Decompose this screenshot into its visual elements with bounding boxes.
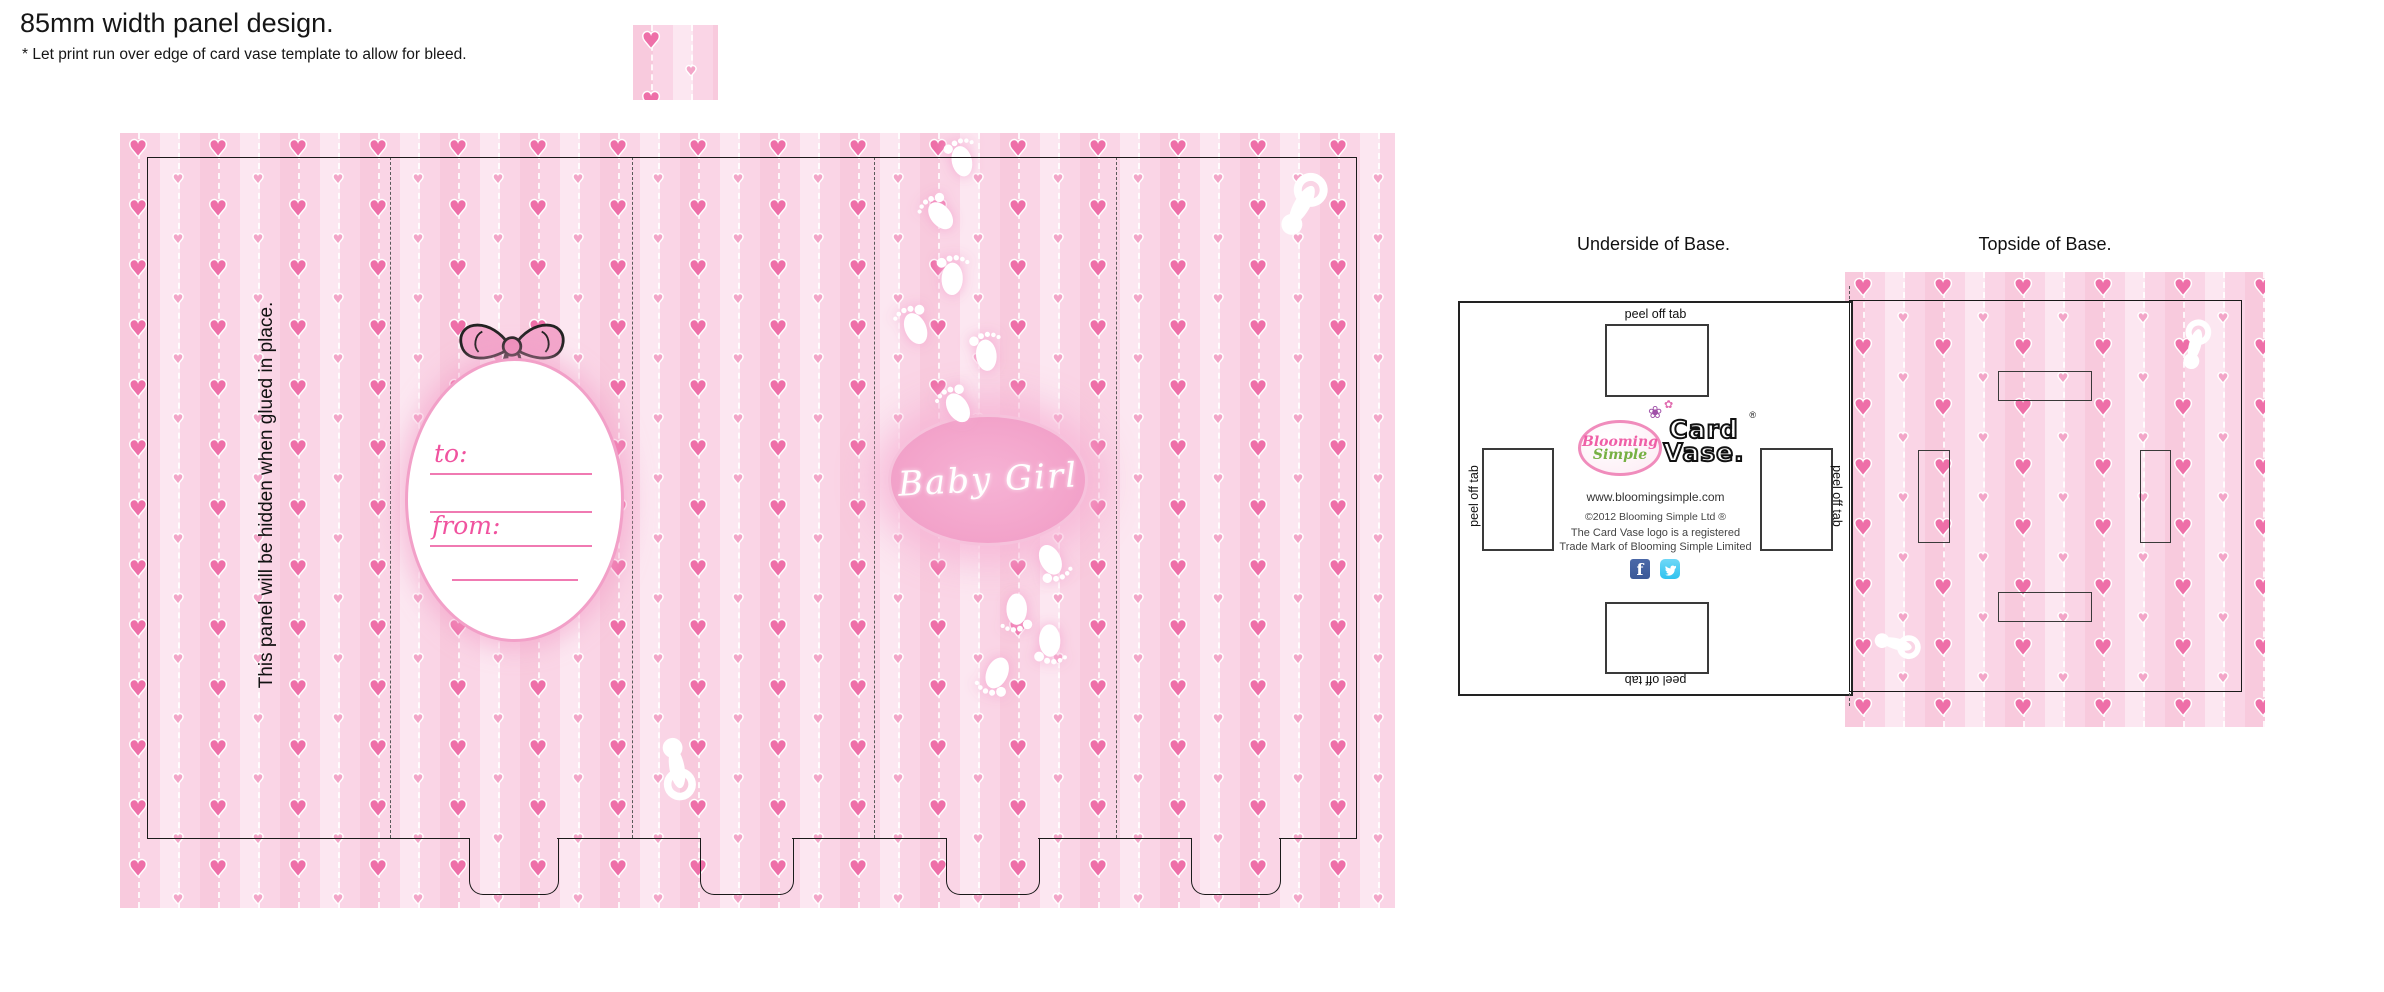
- underside-base-panel: peel off tab peel off tab peel off tab p…: [1458, 301, 1853, 696]
- heart-icon: ♥: [2174, 698, 2193, 719]
- cut-border: [147, 157, 1357, 839]
- heart-icon: ♥: [333, 893, 344, 905]
- heart-icon: ♥: [1133, 893, 1144, 905]
- design-sheet: 85mm width panel design. * Let print run…: [0, 0, 2384, 992]
- cut-line-segment: [1279, 838, 1357, 839]
- page-title: 85mm width panel design.: [20, 8, 334, 39]
- pattern-swatch: ♥♥♥: [633, 25, 718, 100]
- heart-icon: ♥: [642, 31, 661, 52]
- heart-icon: ♥: [1854, 278, 1873, 299]
- heart-icon: ♥: [1329, 859, 1348, 880]
- peel-off-tab-label-top: peel off tab: [1460, 307, 1851, 321]
- heart-icon: ♥: [1373, 593, 1384, 605]
- heart-icon: ♥: [129, 799, 148, 820]
- heart-icon: ♥: [1373, 413, 1384, 425]
- heart-icon: ♥: [686, 65, 697, 77]
- peel-off-tab-label-right: peel off tab: [1830, 446, 1844, 546]
- cut-line-segment: [1038, 838, 1191, 839]
- cut-line-segment: [147, 838, 469, 839]
- peel-off-tab-label-bottom: peel off tab: [1460, 673, 1851, 687]
- slot-top: [1998, 371, 2092, 401]
- heart-icon: ♥: [1373, 773, 1384, 785]
- heart-icon: ♥: [129, 859, 148, 880]
- peel-tab-slot-right: [1760, 448, 1833, 551]
- heart-icon: ♥: [413, 893, 424, 905]
- flower-icon: ✿: [1664, 401, 1673, 411]
- heart-icon: ♥: [2014, 698, 2033, 719]
- topside-base-panel: ♥♥♥♥♥♥♥♥♥♥♥♥♥♥♥♥♥♥♥♥♥♥♥♥♥♥♥♥♥♥♥♥♥♥♥♥♥♥♥♥…: [1845, 272, 2265, 727]
- heart-icon: ♥: [129, 379, 148, 400]
- heart-icon: ♥: [129, 679, 148, 700]
- blooming-simple-logo: Blooming Simple: [1578, 420, 1662, 476]
- facebook-icon: f: [1630, 559, 1650, 579]
- heart-icon: ♥: [129, 199, 148, 220]
- heart-icon: ♥: [2254, 398, 2265, 419]
- vase-word: Vase.: [1662, 442, 1746, 465]
- heart-icon: ♥: [2174, 278, 2193, 299]
- heart-icon: ♥: [1373, 653, 1384, 665]
- heart-icon: ♥: [1854, 698, 1873, 719]
- heart-icon: ♥: [1373, 713, 1384, 725]
- heart-icon: ♥: [2254, 578, 2265, 599]
- heart-icon: ♥: [173, 893, 184, 905]
- heart-icon: ♥: [893, 893, 904, 905]
- heart-icon: ♥: [2254, 458, 2265, 479]
- heart-icon: ♥: [1293, 893, 1304, 905]
- heart-icon: ♥: [2094, 698, 2113, 719]
- heart-icon: ♥: [129, 319, 148, 340]
- heart-icon: ♥: [609, 859, 628, 880]
- heart-icon: ♥: [129, 439, 148, 460]
- heart-icon: ♥: [1373, 173, 1384, 185]
- heart-icon: ♥: [2254, 338, 2265, 359]
- heart-icon: ♥: [1169, 859, 1188, 880]
- heart-icon: ♥: [1373, 293, 1384, 305]
- heart-icon: ♥: [2254, 278, 2265, 299]
- card-vase-logo: ❀ ✿ ® Card Vase.: [1662, 419, 1746, 464]
- glue-tab: [469, 838, 559, 895]
- topside-border: [1849, 300, 2242, 692]
- heart-icon: ♥: [369, 859, 388, 880]
- heart-icon: ♥: [209, 859, 228, 880]
- glue-tab: [946, 838, 1040, 895]
- heart-icon: ♥: [1373, 473, 1384, 485]
- heart-icon: ♥: [1934, 278, 1953, 299]
- heart-icon: ♥: [129, 499, 148, 520]
- panel-template: ♥♥♥♥♥♥♥♥♥♥♥♥♥♥♥♥♥♥♥♥♥♥♥♥♥♥♥♥♥♥♥♥♥♥♥♥♥♥♥♥…: [120, 133, 1395, 908]
- page-subtitle: * Let print run over edge of card vase t…: [22, 46, 467, 64]
- heart-icon: ♥: [129, 139, 148, 160]
- heart-icon: ♥: [1373, 893, 1384, 905]
- heart-icon: ♥: [1373, 233, 1384, 245]
- stitch-line: [691, 25, 693, 100]
- stitch-line: [138, 133, 140, 908]
- cut-line-segment: [792, 838, 946, 839]
- heart-icon: ♥: [2094, 278, 2113, 299]
- heart-icon: ♥: [2254, 698, 2265, 719]
- peel-tab-slot-bottom: [1605, 602, 1709, 674]
- registered-mark: ®: [1749, 411, 1756, 419]
- heart-icon: ♥: [1089, 859, 1108, 880]
- heart-icon: ♥: [1373, 533, 1384, 545]
- heart-icon: ♥: [129, 619, 148, 640]
- slot-right: [2140, 450, 2171, 543]
- heart-icon: ♥: [929, 859, 948, 880]
- heart-icon: ♥: [2014, 278, 2033, 299]
- heart-icon: ♥: [653, 893, 664, 905]
- flower-icon: ❀: [1648, 405, 1662, 420]
- peel-tab-slot-left: [1482, 448, 1554, 551]
- glue-tab: [700, 838, 794, 895]
- slot-bottom: [1998, 592, 2092, 622]
- heart-icon: ♥: [1053, 893, 1064, 905]
- heart-icon: ♥: [1373, 353, 1384, 365]
- heart-icon: ♥: [129, 559, 148, 580]
- underside-label: Underside of Base.: [1458, 234, 1849, 255]
- heart-icon: ♥: [573, 893, 584, 905]
- cut-line-segment: [557, 838, 700, 839]
- heart-icon: ♥: [2254, 638, 2265, 659]
- stitch-line: [1378, 133, 1380, 908]
- slot-left: [1918, 450, 1950, 543]
- heart-icon: ♥: [449, 859, 468, 880]
- heart-icon: ♥: [129, 739, 148, 760]
- topside-label: Topside of Base.: [1845, 234, 2245, 255]
- heart-icon: ♥: [813, 893, 824, 905]
- heart-icon: ♥: [1373, 833, 1384, 845]
- glue-tab: [1191, 838, 1281, 895]
- heart-icon: ♥: [849, 859, 868, 880]
- heart-icon: ♥: [129, 259, 148, 280]
- peel-off-tab-label-left: peel off tab: [1467, 446, 1481, 546]
- twitter-icon: [1660, 559, 1680, 579]
- heart-icon: ♥: [289, 859, 308, 880]
- simple-word: Simple: [1593, 448, 1647, 462]
- heart-icon: ♥: [2254, 518, 2265, 539]
- heart-icon: ♥: [642, 91, 661, 101]
- heart-icon: ♥: [253, 893, 264, 905]
- heart-icon: ♥: [1934, 698, 1953, 719]
- heart-stripe-pattern: ♥♥♥: [633, 25, 718, 100]
- peel-tab-slot-top: [1605, 324, 1709, 397]
